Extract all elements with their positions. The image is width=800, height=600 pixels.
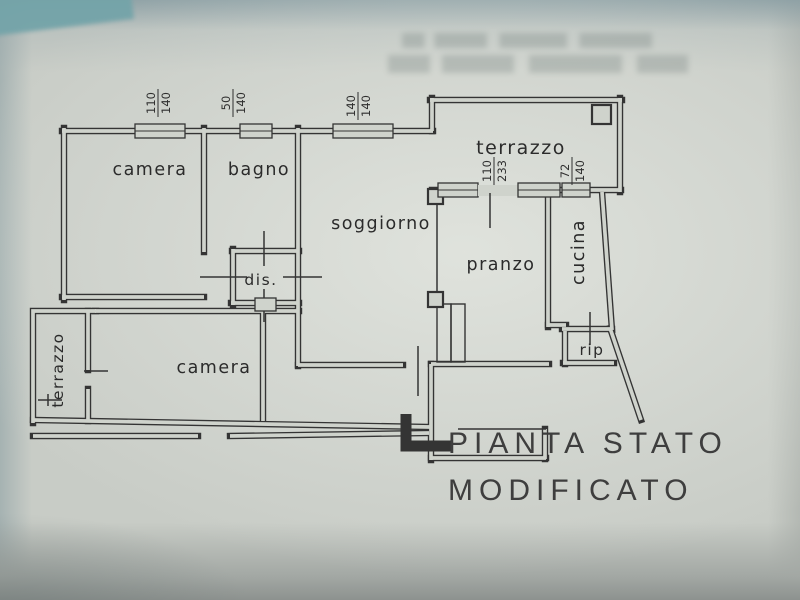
photographed-floor-plan-document: camera bagno soggiorno terrazzo pranzo c… — [0, 0, 800, 600]
door-leaf — [255, 298, 276, 311]
room-label-camera-1: camera — [112, 160, 187, 180]
room-label-pranzo: pranzo — [466, 255, 535, 275]
svg-text:140: 140 — [159, 92, 173, 114]
dimension-50-140: 50 140 — [219, 89, 248, 117]
svg-text:50: 50 — [219, 96, 233, 111]
dimension-110-140: 110 140 — [144, 89, 173, 117]
dimension-110-233: 110 233 — [480, 157, 509, 185]
room-label-bagno: bagno — [228, 160, 290, 180]
svg-text:140: 140 — [359, 95, 373, 117]
plan-title-line1: PIANTA STATO — [448, 427, 728, 460]
dimension-72-140: 72 140 — [558, 157, 587, 185]
svg-text:110: 110 — [144, 92, 158, 114]
room-label-terrazzo-left: terrazzo — [49, 332, 67, 407]
room-label-camera-2: camera — [176, 358, 251, 378]
room-label-soggiorno: soggiorno — [331, 214, 431, 234]
terrace-pillar — [592, 105, 611, 124]
svg-text:233: 233 — [495, 160, 509, 182]
room-label-cucina: cucina — [569, 219, 589, 285]
svg-text:140: 140 — [234, 92, 248, 114]
svg-text:140: 140 — [344, 95, 358, 117]
room-label-terrazzo-top: terrazzo — [476, 137, 566, 159]
door-opening — [478, 185, 518, 196]
svg-text:72: 72 — [558, 164, 572, 179]
room-label-dis: dis. — [244, 271, 277, 289]
pillar — [428, 292, 443, 307]
svg-text:110: 110 — [480, 160, 494, 182]
plan-title-line2: MODIFICATO — [448, 474, 694, 507]
room-label-rip: rip — [579, 341, 604, 359]
svg-text:140: 140 — [573, 160, 587, 182]
dimension-140-140: 140 140 — [344, 92, 373, 120]
floor-plan-drawing: camera bagno soggiorno terrazzo pranzo c… — [0, 0, 800, 600]
soggiorno-pranzo-partition — [428, 189, 465, 362]
